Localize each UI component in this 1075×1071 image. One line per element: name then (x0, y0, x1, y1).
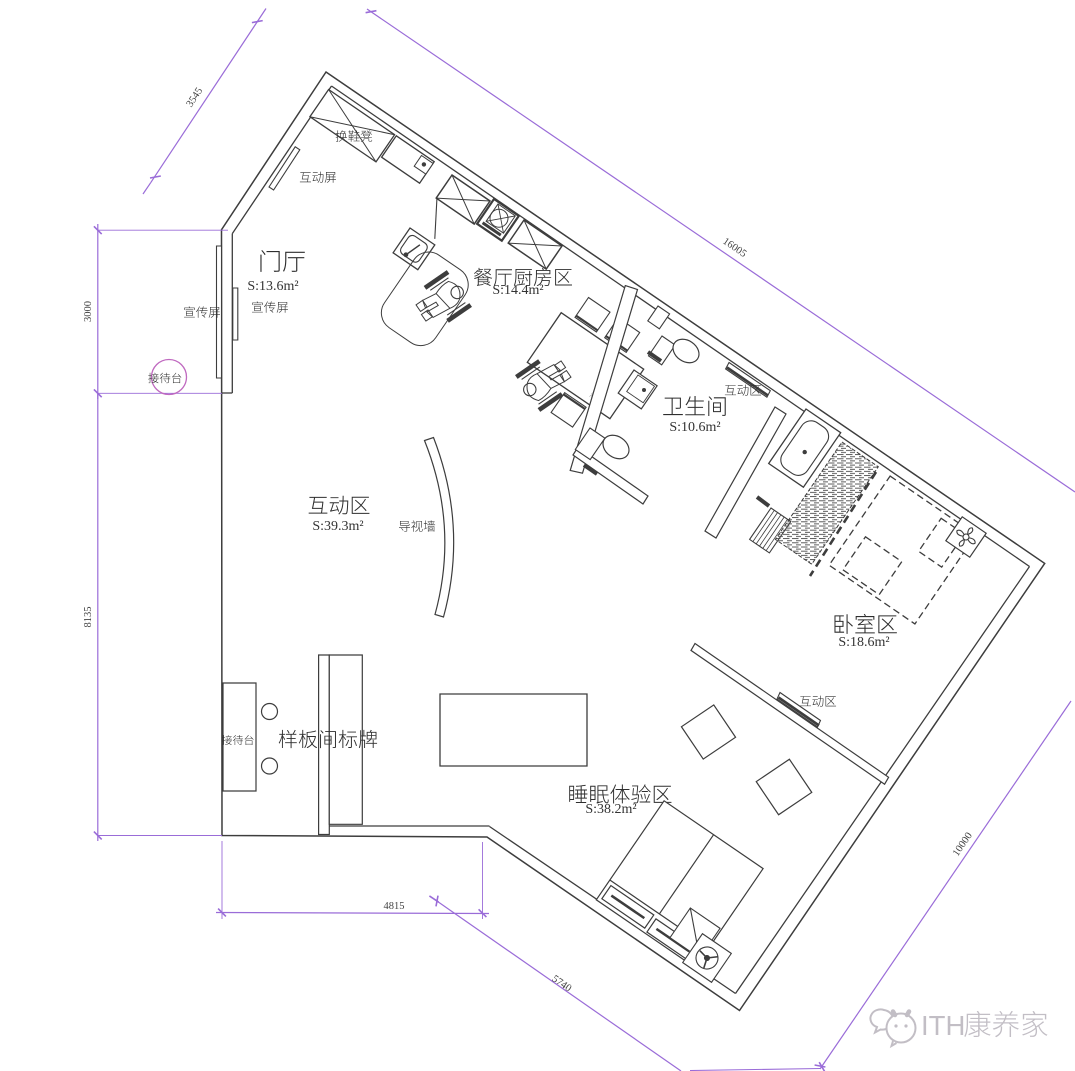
svg-text:S:10.6m²: S:10.6m² (669, 420, 720, 435)
svg-text:3000: 3000 (83, 301, 94, 322)
svg-text:S:13.6m²: S:13.6m² (247, 279, 298, 294)
svg-text:4815: 4815 (384, 901, 405, 912)
svg-text:S:38.2m²: S:38.2m² (585, 802, 636, 817)
svg-text:S:14.4m²: S:14.4m² (492, 283, 543, 298)
svg-text:8135: 8135 (83, 607, 94, 628)
svg-text:S:39.3m²: S:39.3m² (312, 519, 363, 534)
svg-text:ITH: ITH (921, 1010, 965, 1041)
svg-text:S:18.6m²: S:18.6m² (838, 635, 889, 650)
